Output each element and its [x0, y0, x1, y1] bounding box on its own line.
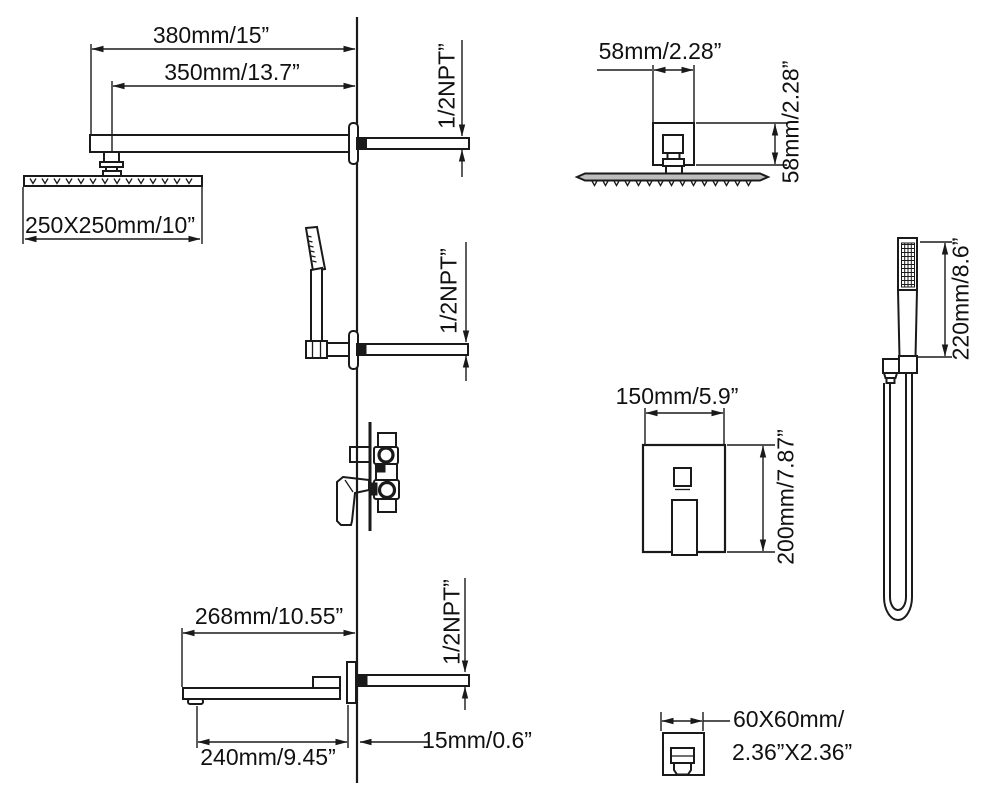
arm-nut — [104, 152, 119, 162]
mixer-valve — [337, 422, 399, 531]
shower-arm — [90, 135, 351, 152]
dim-label-plate-width: 150mm/5.9” — [577, 384, 777, 409]
valve-stop-screw — [377, 465, 385, 472]
diverter-button — [674, 468, 691, 486]
dim-label-arm-overall: 380mm/15” — [111, 23, 311, 48]
hose-tubes — [884, 373, 912, 597]
mount-collar — [666, 166, 682, 174]
hose-nut-collar — [887, 378, 895, 383]
valve-trim-plate-front — [643, 445, 725, 555]
handheld-spray-grid — [902, 243, 915, 287]
holder-pipe-thread — [357, 344, 366, 355]
shower-head-top-view — [577, 123, 768, 186]
valve-lower-outlet — [380, 483, 395, 498]
wand-handle — [311, 268, 322, 342]
dim-label-spout-face-in: 2.36”X2.36” — [732, 740, 852, 765]
wand-head — [306, 227, 325, 271]
spout-step — [313, 677, 340, 688]
dim-label-holder-thread: 1/2NPT” — [437, 248, 462, 334]
head-slab — [577, 174, 768, 181]
dim-label-spout-overall: 268mm/10.55” — [169, 604, 369, 629]
holder-arm — [327, 343, 351, 356]
valve-handle-lever — [337, 477, 369, 525]
dim-label-spout-offset: 15mm/0.6” — [377, 728, 577, 753]
head-nozzles — [592, 181, 751, 186]
valve-cartridge-nipple — [369, 483, 377, 495]
valve-left-port — [350, 447, 370, 462]
spout-supply-pipe — [357, 675, 469, 686]
hose-loop-inner — [890, 597, 906, 610]
diagram-canvas: 380mm/15” 350mm/13.7” 250X250mm/10” 1/2N… — [0, 0, 990, 800]
spout-outlet — [188, 699, 203, 704]
dim-label-spout-thread: 1/2NPT” — [440, 579, 465, 665]
spout-wall-plate — [347, 662, 356, 703]
tub-spout-front-view — [663, 733, 704, 775]
line-art — [0, 0, 990, 800]
rain-shower-arm-assembly — [24, 135, 351, 186]
dim-label-spout-body: 240mm/9.45” — [168, 745, 368, 770]
dim-label-head-size: 250X250mm/10” — [10, 213, 210, 238]
dim-label-head-width: 58mm/2.28” — [560, 39, 760, 64]
arm-pipe-thread — [357, 138, 367, 149]
dim-label-arm-thread: 1/2NPT” — [435, 43, 460, 129]
holder-cup — [306, 341, 327, 358]
dim-label-spout-face-mm: 60X60mm/ — [733, 707, 844, 732]
valve-upper-outlet — [379, 448, 393, 462]
mount-inner-square — [663, 135, 683, 153]
mount-nut — [663, 159, 684, 166]
holder-supply-pipe — [357, 344, 468, 355]
valve-bottom-port — [378, 499, 396, 512]
spout-front-tip — [674, 763, 691, 775]
hand-shower-side — [883, 238, 917, 620]
spout-pipe-thread — [357, 675, 367, 686]
tub-spout — [183, 662, 356, 704]
hose-loop-outer — [884, 597, 912, 620]
dim-label-plate-height: 200mm/7.87” — [774, 429, 799, 565]
hand-shower-in-holder — [306, 227, 351, 358]
arm-supply-pipe — [357, 138, 469, 149]
valve-top-port — [378, 433, 396, 447]
dim-label-head-height: 58mm/2.28” — [779, 61, 804, 184]
hose-connector-left — [883, 359, 899, 373]
dim-label-arm-to-head: 350mm/13.7” — [132, 60, 332, 85]
plate-handle — [672, 500, 697, 555]
dim-label-handshower-length: 220mm/8.6” — [949, 238, 974, 361]
hose-connector-right — [899, 356, 917, 373]
spout-body — [183, 688, 340, 699]
handheld-handle — [898, 290, 917, 357]
